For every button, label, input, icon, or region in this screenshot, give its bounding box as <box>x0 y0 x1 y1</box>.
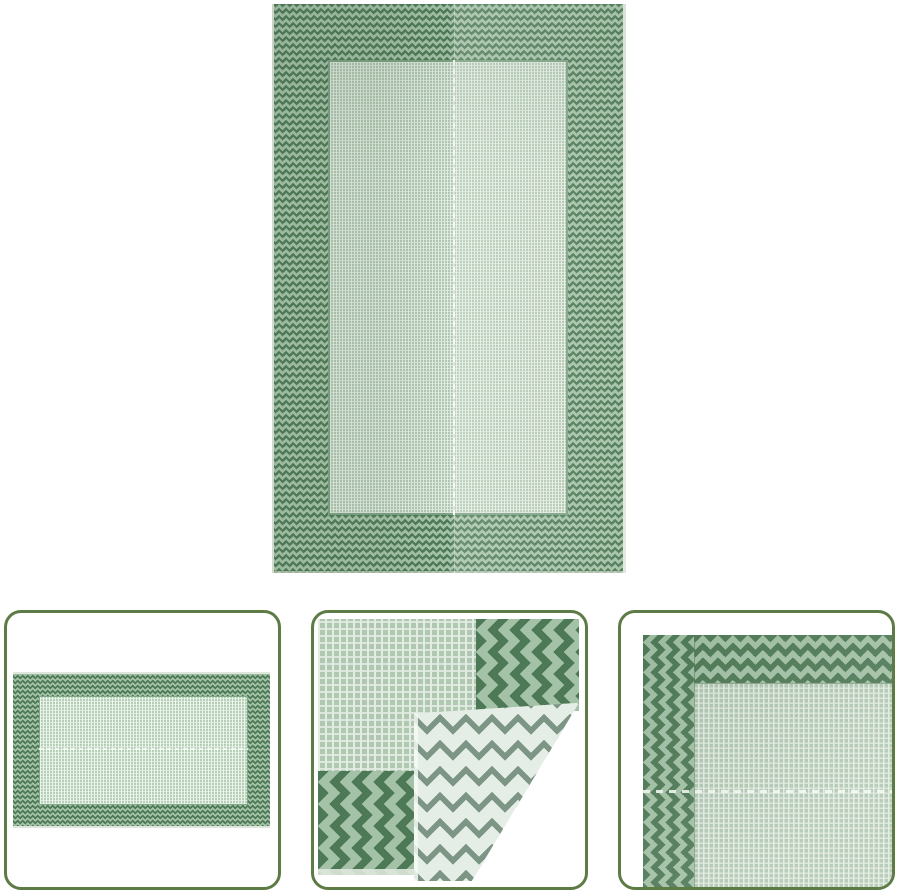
rug-center-seam-dashes <box>453 60 455 515</box>
mini-rug-woven-field <box>39 696 248 805</box>
thumbnail-rug-full-view[interactable] <box>4 610 281 890</box>
corner-woven-field <box>643 635 894 889</box>
closeup-chevron-border-top <box>476 619 579 711</box>
thumbnail-border-corner[interactable] <box>618 610 895 890</box>
rug-woven-field <box>328 60 568 515</box>
folded-corner-reverse-side <box>414 701 579 881</box>
mini-rug-chevron-border <box>13 672 270 828</box>
thumbnail-folded-corner[interactable] <box>311 610 588 890</box>
corner-horizontal-seam <box>643 790 894 793</box>
closeup-chevron-border-left <box>318 771 414 875</box>
main-product-image[interactable] <box>0 0 900 596</box>
mini-rug-center-seam <box>39 748 248 750</box>
rug-chevron-border <box>272 4 626 573</box>
corner-chevron-border-left <box>643 635 694 889</box>
